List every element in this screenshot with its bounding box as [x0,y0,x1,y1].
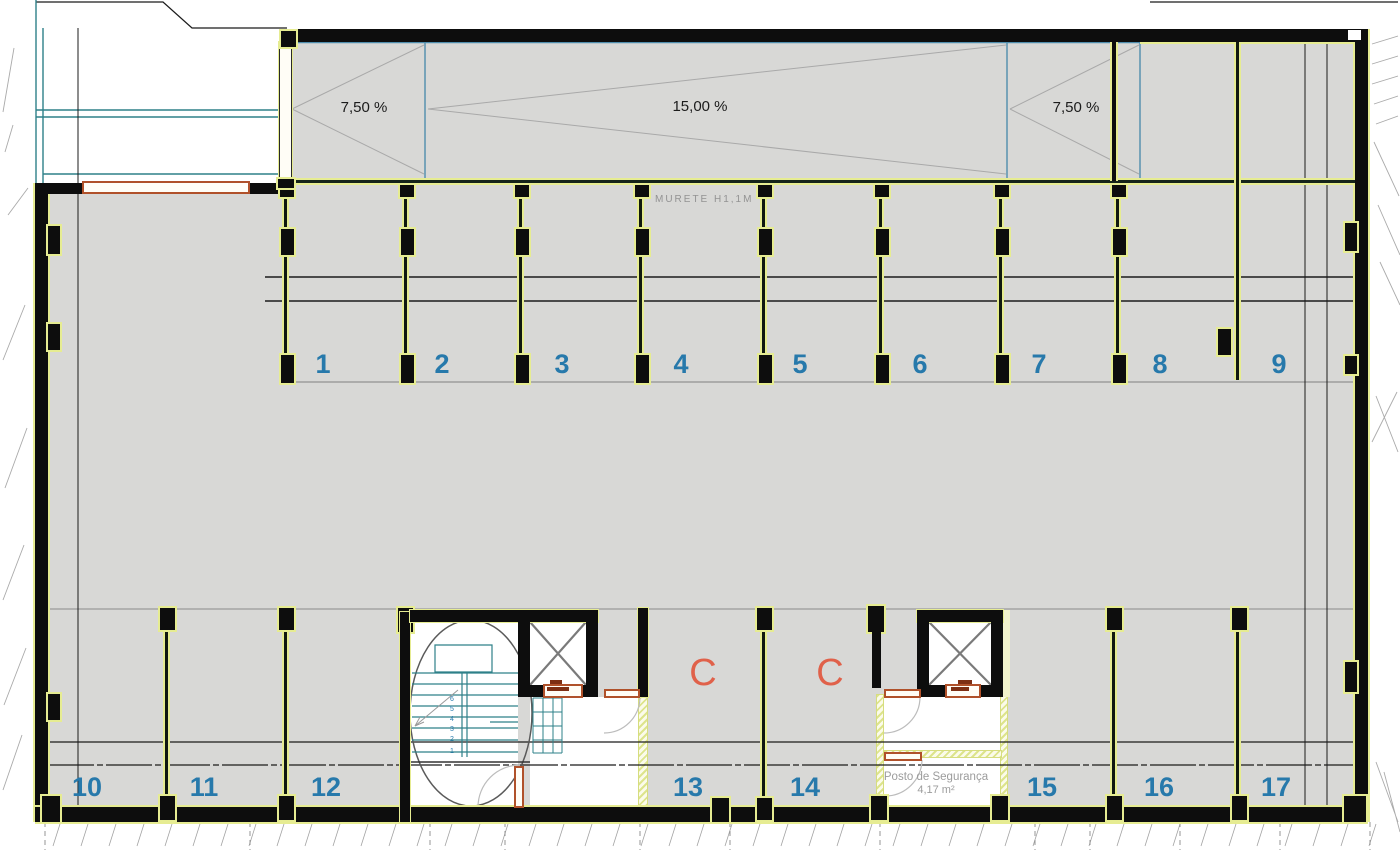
column [1216,327,1233,357]
parking-divider [1110,610,1117,807]
column [277,794,296,822]
elevator2-wall [991,622,1003,685]
site-grid-dashed [45,822,1370,850]
column [1230,606,1249,632]
parking-space-number: 5 [770,349,830,379]
stair-step-number: 4 [447,716,457,723]
parking-divider [517,184,524,380]
column [755,796,774,822]
parking-divider [282,184,289,380]
aisle-lines-upper [265,277,1355,301]
stair-step-number: 5 [447,706,457,713]
stair-treads [412,645,518,757]
door-leaf [604,689,640,698]
parking-space-number: 16 [1129,772,1189,802]
parking-space-number: 1 [293,349,353,379]
parking-divider [1114,184,1121,380]
column [1111,353,1128,385]
column-mark-c1: C [678,652,728,694]
site-lines-left [3,48,28,790]
column [755,606,774,632]
column [1110,183,1128,199]
parking-divider [877,184,884,380]
parking-space-number: 3 [532,349,592,379]
security-room-label: Posto de Segurança [851,771,1021,783]
murete-wall [287,180,1355,183]
parking-space-number: 15 [1012,772,1072,802]
parking-divider [1234,42,1241,380]
ramp-slope-label-center: 15,00 % [640,98,760,115]
garage-door [82,181,250,194]
parking-divider [1234,610,1241,807]
elevator2-wall [917,610,1003,622]
security-room-area: 4,17 m² [851,784,1021,796]
column [874,227,891,257]
top-wall [287,29,1368,42]
parking-space-number: 7 [1009,349,1069,379]
wall-notch [1348,30,1361,40]
column [756,183,774,199]
parking-space-number: 4 [651,349,711,379]
door-leaf [884,752,922,761]
stair-step-number: 6 [447,696,457,703]
site-lines-right [1372,36,1400,832]
parking-divider [163,610,170,807]
column [277,606,296,632]
vestibule1-wall [638,608,648,697]
site-boundary-line [36,2,1398,28]
column [634,353,651,385]
parking-space-number: 2 [412,349,472,379]
parking-divider [282,610,289,807]
column [1343,221,1359,253]
left-wall [35,183,48,822]
door-leaf [514,766,524,808]
column [276,177,296,190]
stair-step-number: 1 [447,748,457,755]
wall-edge-highlight [1140,42,1355,44]
column [993,183,1011,199]
elevator2-door-bar [958,680,972,684]
parking-divider [997,184,1004,380]
column [1343,660,1359,694]
column [633,183,651,199]
stair-core-wall [410,610,598,622]
cad-linework [0,0,1400,850]
column [994,227,1011,257]
door-leaf [884,689,921,698]
column [158,606,177,632]
right-wall [1355,29,1368,822]
column [399,227,416,257]
stair-step-number: 3 [447,726,457,733]
parking-space-number: 12 [296,772,356,802]
parking-space-number: 13 [658,772,718,802]
column [634,227,651,257]
entry-wall-segment [35,183,82,194]
parking-divider [402,184,409,380]
column [874,353,891,385]
column [46,322,62,352]
column [990,794,1010,822]
column [398,183,416,199]
elevator2-wall [917,685,947,697]
column [1342,794,1368,824]
column [869,794,889,822]
column [279,227,296,257]
site-hatch-bottom [53,824,1376,846]
parking-space-number: 14 [775,772,835,802]
floor-plan-canvas: 7,50 % 15,00 % 7,50 % MURETE H1,1M 1 2 3… [0,0,1400,850]
column [1105,606,1124,632]
elevator2-door-bar [951,687,969,691]
parking-divider [760,184,767,380]
murete-label: MURETE H1,1M [655,194,753,205]
core2-wall [872,610,881,688]
wall-edge-highlight [35,822,1368,824]
column [1343,354,1359,376]
column [514,353,531,385]
ramp-slope-label-left: 7,50 % [304,99,424,116]
column [514,227,531,257]
wall-edge-highlight [33,183,35,822]
parking-space-number: 11 [174,772,234,802]
parking-space-number: 10 [57,772,117,802]
bottom-wall [35,807,1368,822]
elevator1-door-bar [547,687,569,691]
parking-space-number: 9 [1249,349,1309,379]
stair-step-number: 2 [447,736,457,743]
parking-divider [637,184,644,380]
column [1111,227,1128,257]
lower-stair-grid [533,698,562,753]
column [873,183,891,199]
parking-space-number: 6 [890,349,950,379]
column [1105,794,1124,822]
elevator1-door-bar [550,680,562,684]
column [513,183,531,199]
parking-divider [760,610,767,807]
parking-space-number: 17 [1246,772,1306,802]
column [46,692,62,722]
column [279,29,298,49]
elevator2-wall [917,622,929,685]
stair-core-wall [400,612,410,822]
ramp-side-wall [279,42,292,183]
wall-edge-highlight [1368,29,1370,822]
column-mark-c2: C [805,652,855,694]
wall-edge-highlight [35,805,1362,807]
elevator1-wall [518,622,530,685]
ramp-slope-label-right: 7,50 % [1016,99,1136,116]
column [757,227,774,257]
parking-space-number: 8 [1130,349,1190,379]
column [46,224,62,256]
